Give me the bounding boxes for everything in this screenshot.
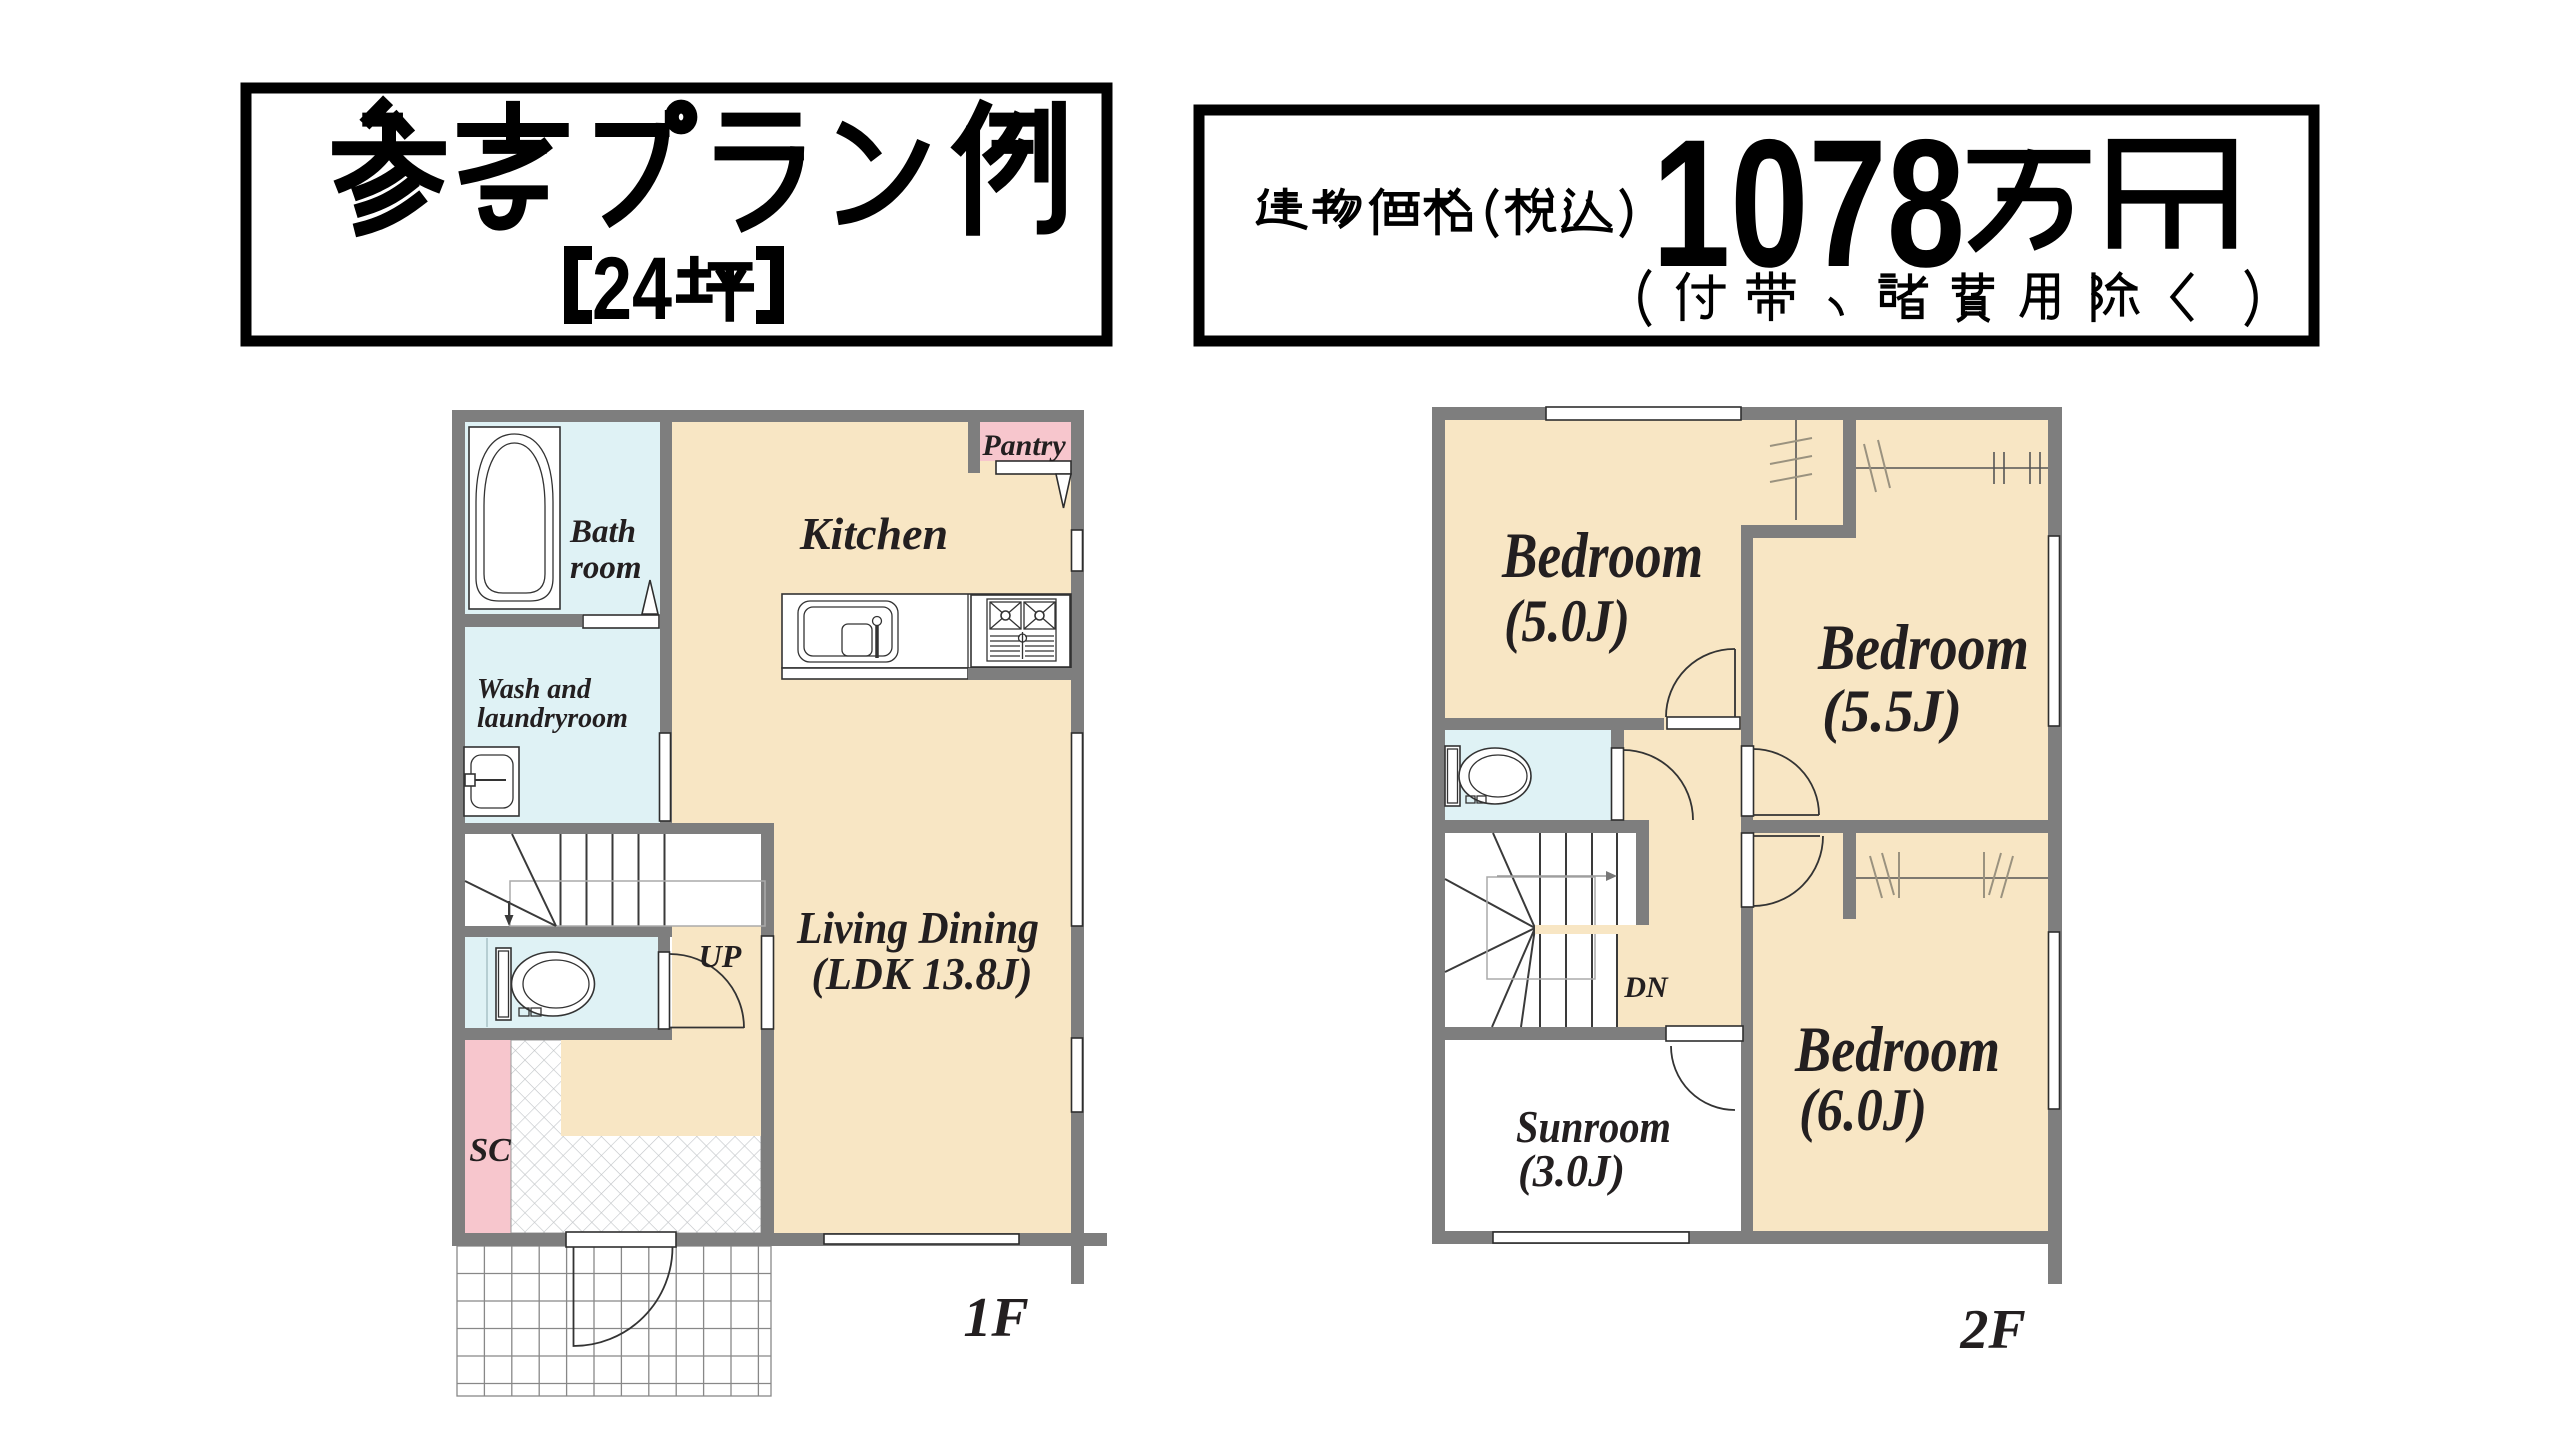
svg-text:Bath: Bath	[569, 514, 636, 550]
svg-text:Wash and: Wash and	[477, 674, 592, 705]
svg-text:SC: SC	[469, 1132, 511, 1169]
svg-text:1F: 1F	[963, 1287, 1028, 1349]
svg-text:Living Dining: Living Dining	[796, 902, 1039, 953]
svg-text:laundryroom: laundryroom	[477, 703, 628, 734]
svg-text:24: 24	[592, 238, 672, 338]
svg-text:(6.0J): (6.0J)	[1799, 1077, 1927, 1143]
svg-text:Bedroom: Bedroom	[1501, 520, 1703, 592]
svg-text:room: room	[570, 550, 642, 586]
svg-text:Kitchen: Kitchen	[799, 508, 948, 559]
svg-text:Pantry: Pantry	[981, 429, 1066, 462]
svg-text:2F: 2F	[1959, 1299, 2025, 1361]
svg-text:Bedroom: Bedroom	[1794, 1014, 2000, 1086]
svg-text:Bedroom: Bedroom	[1817, 612, 2029, 684]
svg-text:1078: 1078	[1652, 101, 1965, 305]
svg-text:UP: UP	[699, 938, 742, 974]
svg-text:(3.0J): (3.0J)	[1518, 1145, 1625, 1196]
svg-text:(LDK 13.8J): (LDK 13.8J)	[812, 948, 1033, 999]
svg-text:(5.0J): (5.0J)	[1504, 588, 1630, 654]
svg-text:DN: DN	[1623, 971, 1669, 1004]
svg-text:(5.5J): (5.5J)	[1822, 678, 1962, 744]
